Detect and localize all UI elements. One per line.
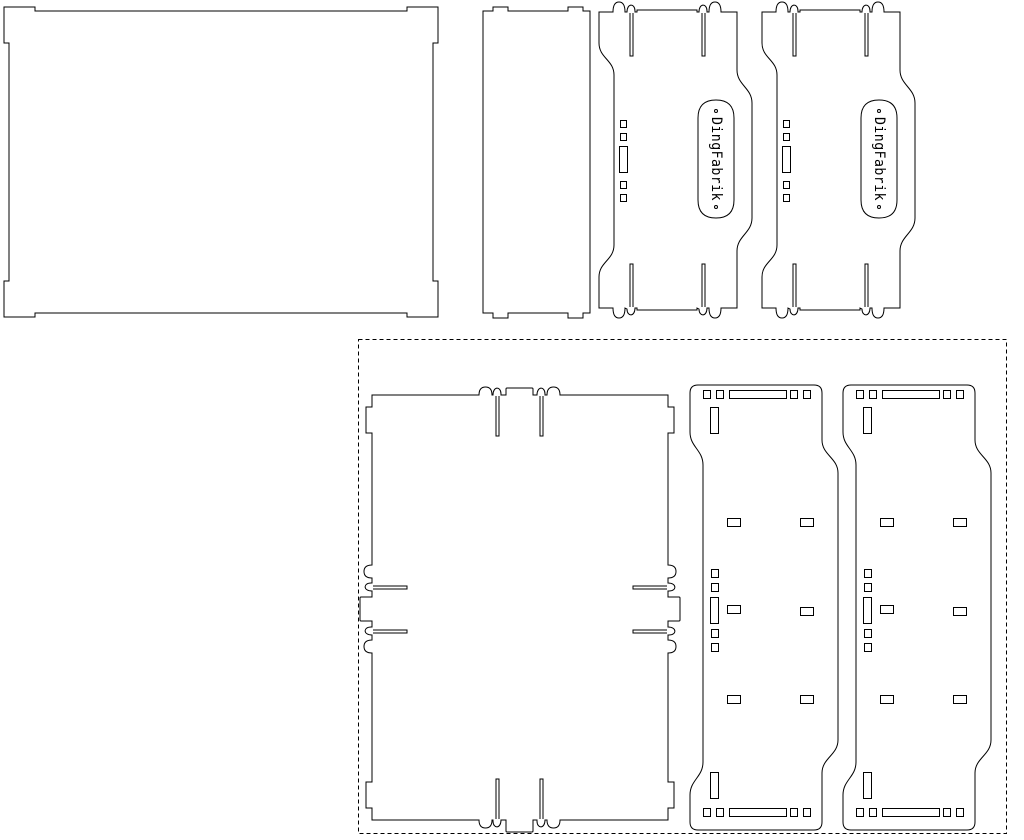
slotted-panel-a-slot [712, 584, 719, 592]
base-panel [360, 387, 680, 832]
slotted-panel-a-slot [711, 598, 719, 624]
slotted-panel-b-slot [864, 408, 872, 434]
slotted-panel-b-slot [870, 391, 877, 399]
slotted-panel-a-slot [801, 608, 814, 616]
slotted-panel-b-slot [881, 606, 894, 614]
slotted-panel-a-slot [730, 391, 787, 399]
slotted-panel-b-slot [957, 809, 964, 817]
slotted-panel-a-slot [728, 606, 741, 614]
slotted-panel-b-slot [944, 391, 951, 399]
slotted-panel-b-slot [865, 584, 872, 592]
side-panel-b-slot [784, 195, 790, 202]
base-panel-slit-cut [540, 396, 543, 436]
slotted-panel-a-slot [711, 773, 719, 799]
base-panel-slit-cut [633, 586, 667, 589]
slotted-panel-b-slot [865, 570, 872, 578]
small-plate [483, 7, 590, 318]
slotted-panel-b-slot [957, 391, 964, 399]
side-panel-a-slot [621, 121, 627, 128]
side-panel-a-slit-cut [702, 264, 705, 307]
side-panel-b-slot [784, 121, 790, 128]
slotted-panel-a-slot [728, 696, 741, 704]
side-panel-a-engraved-label: DingFabrik [708, 117, 724, 201]
side-panel-b-label-dot [878, 206, 881, 209]
base-panel-slit-cut [373, 630, 407, 633]
side-panel-a-slot [621, 134, 627, 141]
side-panel-b-label-dot [878, 110, 881, 113]
slotted-panel-b-slot [865, 644, 872, 652]
slotted-panel-b-slot [864, 773, 872, 799]
slotted-panel-a [690, 385, 838, 830]
side-panel-b-slot [784, 134, 790, 141]
slotted-panel-b-slot [944, 809, 951, 817]
side-panel-b-slit-cut [865, 264, 868, 307]
base-panel-slit-cut [540, 779, 543, 819]
side-panel-b-outline [762, 2, 915, 318]
side-panel-b: DingFabrik [762, 2, 915, 318]
side-panel-a-slit-cut [630, 264, 633, 307]
slotted-panel-b-slot [857, 809, 864, 817]
slotted-panel-a-slot [704, 809, 711, 817]
slotted-panel-b-slot [881, 696, 894, 704]
slotted-panel-b-slot [883, 809, 940, 817]
slotted-panel-a-outline [690, 385, 838, 830]
side-panel-a-slot [620, 147, 628, 173]
slotted-panel-b-slot [864, 598, 872, 624]
slotted-panel-a-slot [804, 391, 811, 399]
base-panel-slit-cut [373, 586, 407, 589]
slotted-panel-a-slot [801, 519, 814, 527]
side-panel-a-slot [621, 182, 627, 189]
slotted-panel-b-outline [843, 385, 991, 830]
side-panel-b-slit-cut [793, 264, 796, 307]
slotted-panel-b-slot [870, 809, 877, 817]
slotted-panel-b-slot [954, 608, 967, 616]
side-panel-a-label-dot [715, 206, 718, 209]
side-panel-b-slit-cut [865, 13, 868, 56]
side-panel-a-slit-cut [630, 13, 633, 56]
side-panel-a-label-dot [715, 110, 718, 113]
base-panel-slit-cut [496, 396, 499, 436]
slotted-panel-b-slot [954, 519, 967, 527]
slotted-panel-a-slot [791, 391, 798, 399]
side-panel-a: DingFabrik [599, 2, 752, 318]
slotted-panel-a-slot [791, 809, 798, 817]
side-panel-b-engraved-label: DingFabrik [871, 117, 887, 201]
slotted-panel-a-slot [717, 809, 724, 817]
slotted-panel-a-slot [728, 519, 741, 527]
slotted-panel-a-slot [712, 570, 719, 578]
sheet-boundary-dashed [359, 340, 1007, 834]
base-panel-outline [360, 387, 680, 832]
side-panel-a-outline [599, 2, 752, 318]
lid-panel [4, 7, 438, 317]
slotted-panel-b-slot [865, 630, 872, 638]
slotted-panel-b-slot [881, 519, 894, 527]
side-panel-a-slit-cut [702, 13, 705, 56]
cut-canvas: DingFabrikDingFabrik [0, 0, 1024, 840]
small-plate-outline [483, 7, 590, 318]
laser-cut-sheet: DingFabrikDingFabrik [0, 0, 1024, 840]
slotted-panel-a-slot [711, 408, 719, 434]
slotted-panel-a-slot [704, 391, 711, 399]
slotted-panel-b-slot [883, 391, 940, 399]
slotted-panel-a-slot [801, 696, 814, 704]
base-panel-slit-cut [496, 779, 499, 819]
slotted-panel-a-slot [717, 391, 724, 399]
slotted-panel-a-slot [730, 809, 787, 817]
side-panel-b-slot [784, 182, 790, 189]
slotted-panel-a-slot [804, 809, 811, 817]
lid-panel-outline [4, 7, 438, 317]
slotted-panel-a-slot [712, 644, 719, 652]
slotted-panel-b [843, 385, 991, 830]
slotted-panel-b-slot [954, 696, 967, 704]
slotted-panel-a-slot [712, 630, 719, 638]
side-panel-b-slit-cut [793, 13, 796, 56]
slotted-panel-b-slot [857, 391, 864, 399]
side-panel-a-slot [621, 195, 627, 202]
side-panel-b-slot [783, 147, 791, 173]
base-panel-slit-cut [633, 630, 667, 633]
